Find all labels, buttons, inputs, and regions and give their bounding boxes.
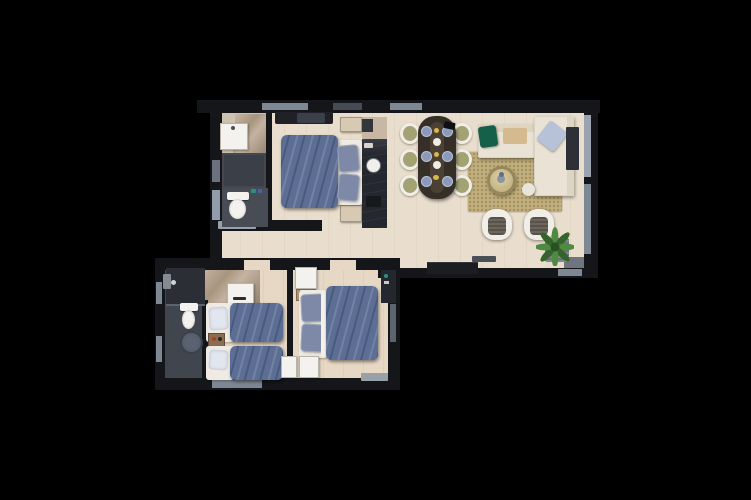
window-icon [558,269,582,276]
potted-plant-icon [536,226,574,266]
entry-door [212,190,220,222]
dining-chair [400,149,420,170]
armchair [482,209,512,240]
window-icon [390,304,396,342]
pillow [208,349,228,370]
toilet-bowl [229,199,246,219]
window-icon [212,380,262,388]
candle [434,152,439,157]
wardrobe [299,356,319,378]
window-icon [262,103,308,110]
stove [366,196,381,207]
candle [433,175,439,180]
single-bed-duvet [230,346,283,380]
duvet-folds [326,286,378,360]
shower-head-icon [171,280,176,285]
nightstand-item [218,337,222,341]
dining-chair [400,175,420,196]
double-bed-duvet [326,286,378,360]
toilet-bowl [182,310,195,329]
faucet-icon [231,126,235,130]
wall-shelf [472,256,496,262]
cutting-board [364,143,373,148]
nightstand [340,117,362,132]
nightstand [340,205,362,222]
table-plant [499,172,504,177]
window-icon [212,160,220,182]
floor-plan-canvas [0,0,751,500]
plate [421,176,432,187]
bath-cabinet [222,153,266,188]
toiletry [258,189,262,193]
fridge [362,119,373,132]
pillow [337,144,360,173]
duvet-folds [230,303,283,342]
door-opening [244,260,270,270]
side-unit [566,127,579,170]
duvet-folds [230,346,283,380]
pouf [522,183,535,196]
wardrobe [281,356,297,378]
serving-bowl [433,161,441,169]
toilet-icon [227,192,249,220]
duvet-folds [281,135,338,208]
clothes [297,113,325,123]
door-opening [330,260,356,270]
dresser [227,283,254,304]
single-bed-duvet [230,303,283,342]
wardrobe-item [384,281,389,284]
window-icon [390,103,422,110]
window-icon [584,184,591,254]
pillow [337,173,360,202]
nightstand-item [212,337,216,341]
window-icon [333,103,362,110]
shower-fixture [163,274,171,289]
nightstand [208,333,225,347]
window-icon [156,282,162,304]
dresser-handle [233,297,246,300]
plate [442,176,453,187]
toilet-icon [180,303,198,330]
green-cushion [478,125,499,148]
tv-bench [427,262,478,274]
shower-enclosure [166,268,205,306]
toiletry [251,189,256,193]
kitchen-counter [362,139,387,228]
plate [442,151,453,162]
wardrobe [295,267,317,289]
plate [421,126,432,137]
window-icon [584,115,591,177]
serving-bowl [433,138,441,146]
window-icon [156,336,162,362]
pillow [208,306,229,330]
doormat [361,373,388,381]
plate [421,151,432,162]
wardrobe-item [384,274,388,278]
double-bed-duvet [281,135,338,208]
candle [434,128,439,133]
dining-chair [400,123,420,144]
round-stool [180,331,203,354]
tan-throw [503,128,527,144]
kitchen-sink [366,158,381,173]
